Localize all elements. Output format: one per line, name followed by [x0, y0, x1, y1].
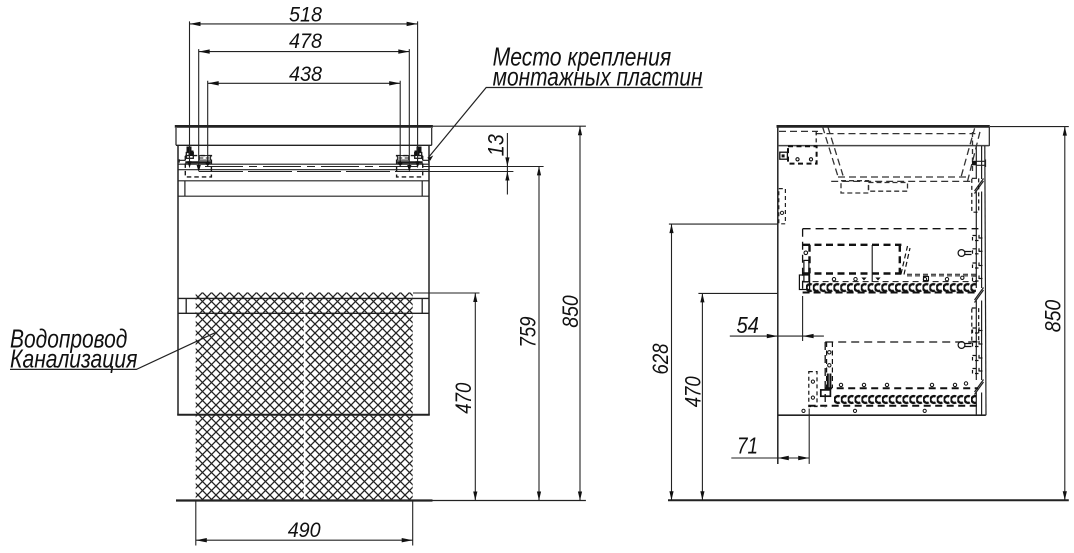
svg-text:13: 13 — [484, 134, 509, 156]
svg-text:490: 490 — [288, 519, 321, 542]
svg-text:628: 628 — [648, 343, 673, 374]
svg-text:470: 470 — [451, 382, 476, 413]
svg-text:54: 54 — [736, 312, 759, 338]
svg-text:478: 478 — [289, 30, 322, 53]
svg-text:759: 759 — [516, 316, 541, 347]
svg-text:438: 438 — [289, 63, 322, 86]
svg-text:850: 850 — [1041, 299, 1066, 332]
svg-text:71: 71 — [737, 433, 758, 459]
svg-text:470: 470 — [681, 376, 706, 407]
svg-text:850: 850 — [558, 295, 583, 328]
svg-text:монтажных пластин: монтажных пластин — [493, 61, 703, 91]
svg-text:518: 518 — [289, 4, 322, 27]
